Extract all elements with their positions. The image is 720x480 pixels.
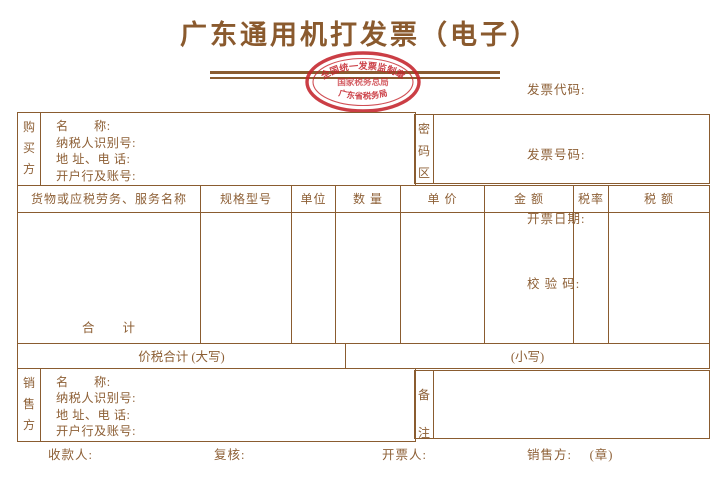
col-header-quantity: 数 量 (336, 186, 401, 213)
tax-total-in-words-label: 价税合计 (大写) (18, 344, 346, 369)
total-row-label: 合 计 (18, 317, 200, 343)
col-header-tax-amount: 税 额 (609, 186, 709, 213)
buyer-address-label: 地 址、电 话: (56, 151, 415, 168)
seller-tax-id-label: 纳税人识别号: (56, 390, 415, 407)
body-cell-tax-rate (574, 213, 609, 343)
stamp-middle-text: 国家税务总局 (337, 76, 389, 87)
password-area-content (434, 115, 709, 183)
buyer-tax-id-label: 纳税人识别号: (56, 135, 415, 152)
body-cell-tax-amount (609, 213, 709, 343)
body-cell-unit (292, 213, 336, 343)
seller-section: 销售方 名 称: 纳税人识别号: 地 址、电 话: 开户行及账号: (17, 368, 416, 442)
seller-bank-label: 开户行及账号: (56, 423, 415, 440)
items-table-header: 货物或应税劳务、服务名称 规格型号 单位 数 量 单 价 金 额 税率 税 额 (18, 186, 709, 214)
seller-seal-label: 销售方: (章) (527, 444, 613, 463)
body-cell-unit-price (401, 213, 485, 343)
items-table: 货物或应税劳务、服务名称 规格型号 单位 数 量 单 价 金 额 税率 税 额 … (17, 185, 710, 345)
reviewer-label: 复核: (214, 444, 245, 463)
seller-name-label: 名 称: (56, 374, 415, 391)
seller-fields: 名 称: 纳税人识别号: 地 址、电 话: 开户行及账号: (41, 369, 415, 441)
password-area: 密码区 (414, 114, 710, 184)
remarks-content (434, 371, 709, 438)
remarks-area: 备注 (414, 370, 710, 439)
password-area-side-label: 密码区 (415, 115, 434, 183)
items-table-body: 合 计 (18, 213, 709, 343)
body-cell-quantity (336, 213, 401, 343)
payee-label: 收款人: (48, 444, 93, 463)
tax-total-in-figures-label: (小写) (346, 344, 709, 369)
remarks-side-label: 备注 (415, 371, 434, 438)
tax-supervision-stamp-icon: 全国统一发票监制章 国家税务总局 广东省税务局 (303, 50, 423, 114)
body-cell-spec-model (201, 213, 292, 343)
stamp-arc-bottom-text: 广东省税务局 (338, 88, 389, 101)
col-header-unit: 单位 (292, 186, 336, 213)
col-header-tax-rate: 税率 (574, 186, 609, 213)
invoice-page: 广东通用机打发票（电子） 全国统一发票监制章 国家税务总局 广东省税务局 发票代… (0, 0, 720, 480)
invoice-title: 广东通用机打发票（电子） (0, 13, 720, 52)
col-header-unit-price: 单 价 (401, 186, 485, 213)
seller-address-label: 地 址、电 话: (56, 407, 415, 424)
drawer-label: 开票人: (382, 444, 427, 463)
col-header-amount: 金 额 (485, 186, 574, 213)
col-header-item-name: 货物或应税劳务、服务名称 (18, 186, 201, 213)
buyer-fields: 名 称: 纳税人识别号: 地 址、电 话: 开户行及账号: (41, 113, 415, 185)
col-header-spec-model: 规格型号 (201, 186, 292, 213)
tax-total-row: 价税合计 (大写) (小写) (17, 343, 710, 370)
buyer-bank-label: 开户行及账号: (56, 168, 415, 185)
body-cell-item-name: 合 计 (18, 213, 201, 343)
body-cell-amount (485, 213, 574, 343)
svg-text:广东省税务局: 广东省税务局 (338, 88, 389, 101)
buyer-name-label: 名 称: (56, 118, 415, 135)
invoice-code-label: 发票代码: (527, 80, 585, 102)
buyer-section: 购买方 名 称: 纳税人识别号: 地 址、电 话: 开户行及账号: (17, 112, 416, 186)
buyer-side-label: 购买方 (18, 113, 41, 185)
seller-side-label: 销售方 (18, 369, 41, 441)
